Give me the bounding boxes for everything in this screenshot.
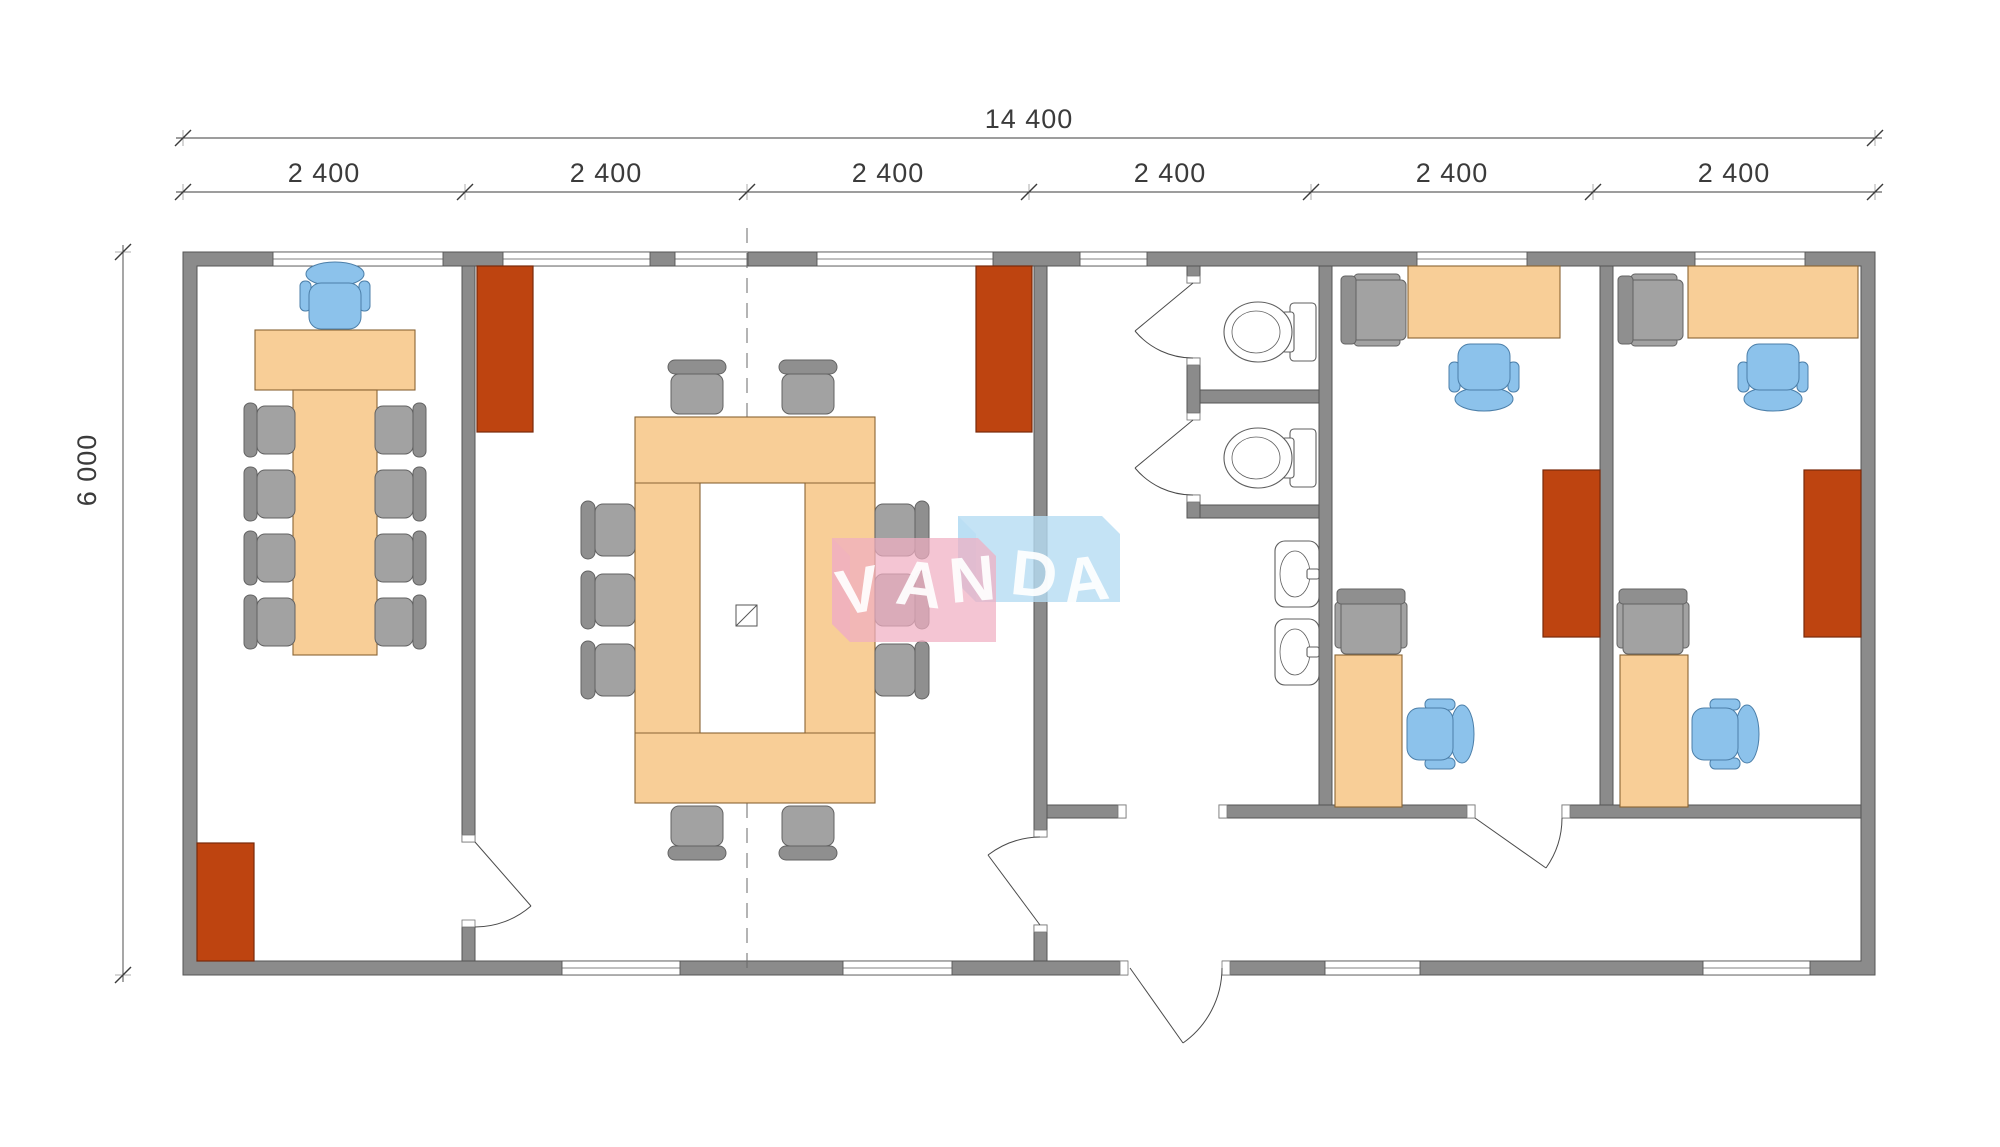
wall-wc-bottom <box>1200 505 1319 518</box>
dimension-top-modules: 2 400 2 400 2 400 2 400 2 400 2 400 <box>175 158 1883 200</box>
executive-chair-blue <box>300 262 370 329</box>
window <box>273 252 443 266</box>
entrance-opening <box>1128 959 1222 977</box>
watermark-letter: A <box>1058 541 1113 618</box>
meeting-desk-head <box>255 330 415 390</box>
window <box>562 961 680 975</box>
chair-gray <box>244 467 295 521</box>
armchair-gray <box>1618 274 1683 346</box>
desk <box>1335 655 1402 807</box>
chair-gray <box>375 467 426 521</box>
chair-gray <box>375 531 426 585</box>
chair-gray <box>581 501 635 559</box>
wall-wc-divider <box>1200 390 1319 403</box>
window <box>1695 252 1805 266</box>
passage-opening-corridor <box>1118 805 1227 818</box>
chair-gray <box>875 641 929 699</box>
toilet-icon <box>1224 302 1316 362</box>
armchair-gray <box>1617 589 1689 654</box>
dim-module-1: 2 400 <box>288 158 361 188</box>
chair-blue <box>1407 699 1474 769</box>
wardrobe <box>976 266 1032 432</box>
wall-room1-room2 <box>462 266 475 842</box>
armchair-gray <box>1341 274 1406 346</box>
dim-module-2: 2 400 <box>570 158 643 188</box>
desk <box>1688 266 1858 338</box>
watermark-letter: D <box>1008 536 1061 612</box>
sanitary-hall <box>1224 302 1319 685</box>
washbasin-icon <box>1275 619 1319 685</box>
watermark-letter: A <box>892 546 947 623</box>
window <box>675 252 748 266</box>
door-office-a <box>1467 805 1570 868</box>
chair-blue <box>1738 344 1808 411</box>
room-meeting <box>197 262 426 961</box>
chair-gray <box>668 360 726 414</box>
wall-corridor <box>1047 805 1126 818</box>
watermark-letter: N <box>946 541 998 617</box>
window <box>1703 961 1810 975</box>
door-meeting-room <box>462 835 531 927</box>
door-wc-stall-1 <box>1135 276 1200 365</box>
meeting-desk-column <box>293 390 377 655</box>
office-a <box>1335 266 1600 807</box>
door-conference-corridor <box>988 830 1047 932</box>
wall-hall-officeA <box>1319 266 1332 818</box>
office-b <box>1617 266 1861 807</box>
chair-gray <box>581 571 635 629</box>
desk <box>1620 655 1688 807</box>
chair-gray <box>244 595 295 649</box>
chair-blue <box>1692 699 1759 769</box>
wardrobe <box>197 843 254 961</box>
wall-officeA-officeB <box>1600 266 1613 818</box>
window <box>817 252 993 266</box>
chair-gray <box>581 641 635 699</box>
dimension-left-height: 6 000 <box>72 244 131 983</box>
washbasin-icon <box>1275 541 1319 607</box>
floor-plan-canvas: 14 400 2 400 2 400 2 400 2 400 2 400 2 4… <box>0 0 2000 1147</box>
desk <box>1408 266 1560 338</box>
chair-gray <box>668 806 726 860</box>
dimension-top-total: 14 400 <box>175 104 1883 146</box>
chair-blue <box>1449 344 1519 411</box>
window <box>1325 961 1420 975</box>
dim-height: 6 000 <box>72 434 102 507</box>
dim-module-3: 2 400 <box>852 158 925 188</box>
chair-gray <box>244 531 295 585</box>
chair-gray <box>375 595 426 649</box>
toilet-icon <box>1224 428 1316 488</box>
wardrobe <box>1543 470 1600 637</box>
dim-total-width: 14 400 <box>985 104 1074 134</box>
dim-module-4: 2 400 <box>1134 158 1207 188</box>
wardrobe <box>1804 470 1861 637</box>
floor-plan-page: 14 400 2 400 2 400 2 400 2 400 2 400 2 4… <box>0 0 2000 1147</box>
armchair-gray <box>1335 589 1407 654</box>
chair-gray <box>244 403 295 457</box>
wardrobe <box>477 266 533 432</box>
chair-gray <box>779 360 837 414</box>
window <box>843 961 952 975</box>
door-wc-stall-2 <box>1135 413 1200 502</box>
dim-module-6: 2 400 <box>1698 158 1771 188</box>
floor-hatch-symbol <box>736 605 757 626</box>
window <box>503 252 650 266</box>
chair-gray <box>779 806 837 860</box>
chair-gray <box>375 403 426 457</box>
window <box>1417 252 1527 266</box>
window <box>1080 252 1147 266</box>
dim-module-5: 2 400 <box>1416 158 1489 188</box>
